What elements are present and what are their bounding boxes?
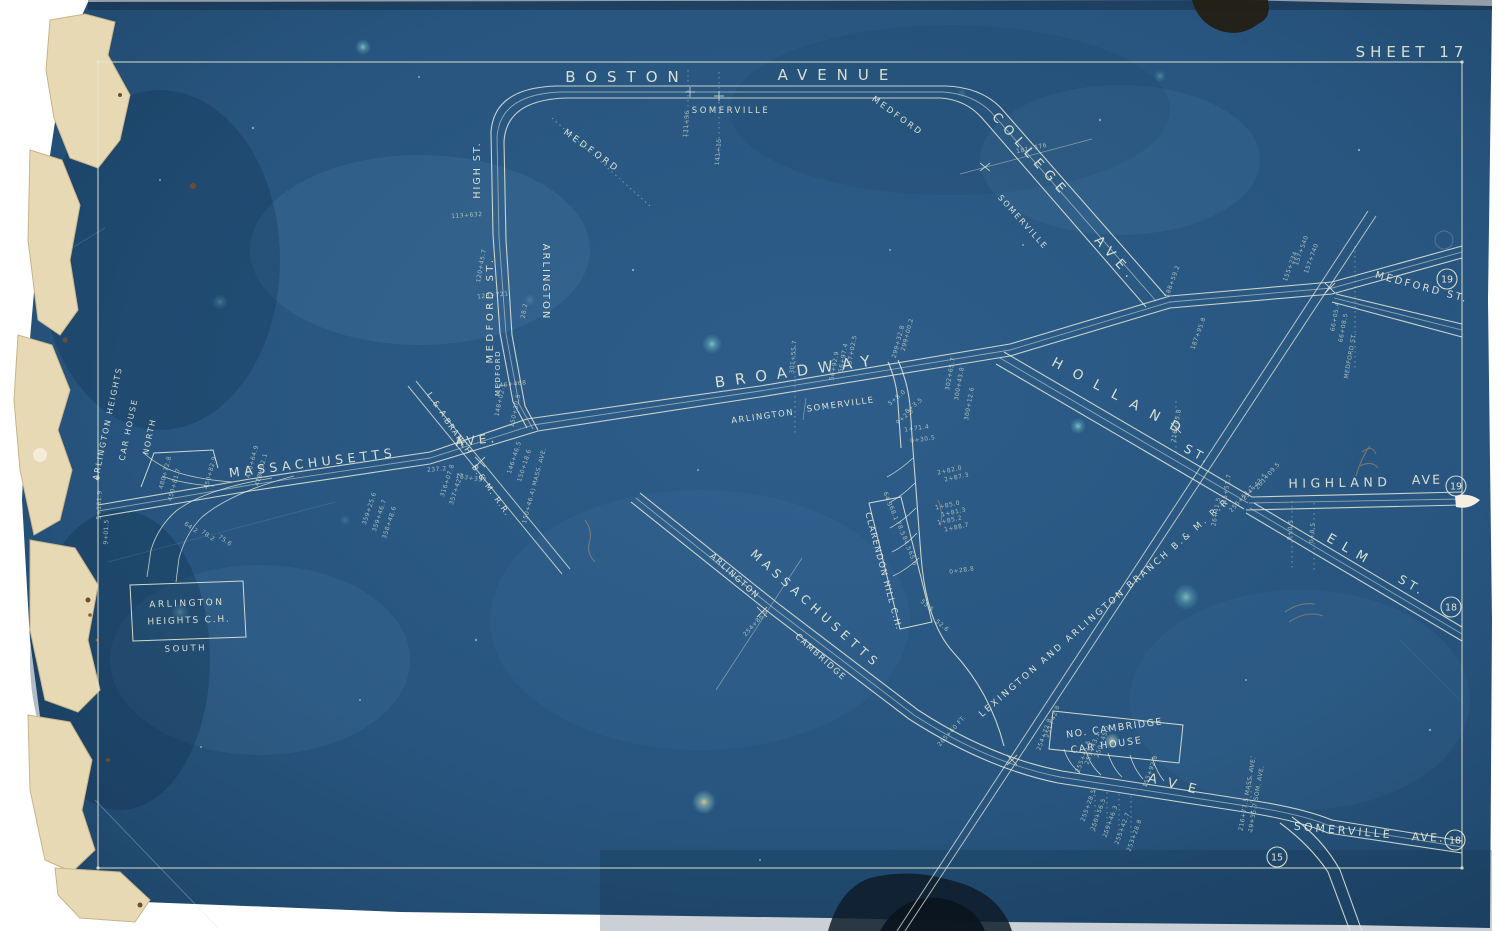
- svg-text:18: 18: [1449, 836, 1461, 847]
- street-label: SOUTH: [165, 643, 208, 654]
- svg-text:19: 19: [1450, 482, 1462, 493]
- paper-hole: [33, 448, 47, 462]
- street-label: SOMERVILLE: [692, 106, 770, 116]
- street-label: BOSTON: [565, 68, 689, 86]
- street-label: MEDFORD ST.: [485, 256, 496, 363]
- station-mark: 5+131.9: [95, 490, 103, 520]
- station-mark: 9+01.5: [103, 519, 111, 544]
- sheet-number-label: SHEET 17: [1356, 43, 1469, 61]
- svg-text:18: 18: [1445, 603, 1457, 614]
- blueprint-map-svg: SHEET 17 BOSTONAVENUESOMERVILLEMEDFORDME…: [0, 0, 1500, 931]
- svg-text:15: 15: [1271, 853, 1283, 864]
- street-label: AVENUE: [778, 66, 899, 84]
- svg-text:19: 19: [1441, 275, 1453, 286]
- street-label: AVE: [1412, 472, 1442, 488]
- street-label: ARLINGTON: [540, 244, 551, 321]
- street-label: AVE.: [1411, 830, 1444, 845]
- street-label: HIGH ST.: [472, 141, 483, 198]
- street-label: HIGHLAND: [1288, 474, 1391, 491]
- scanned-blueprint-page: SHEET 17 BOSTONAVENUESOMERVILLEMEDFORDME…: [0, 0, 1500, 931]
